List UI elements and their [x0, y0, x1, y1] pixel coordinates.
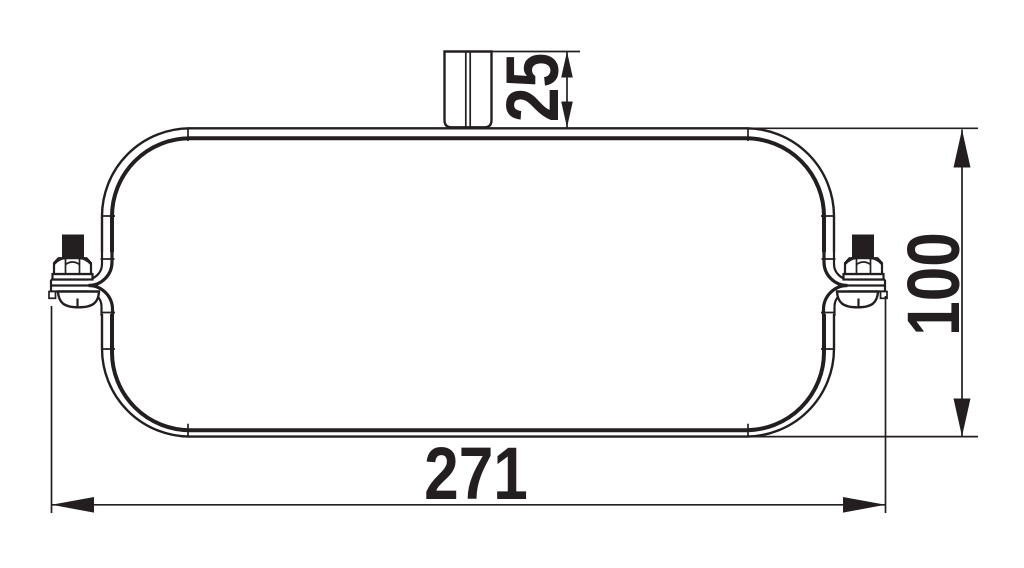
- clamp-outer-contour: [102, 128, 834, 436]
- top-connector-stud: [445, 52, 492, 128]
- width-dimension-label: 271: [424, 433, 528, 515]
- dimension-height: 100: [746, 128, 978, 436]
- threaded-stud: [62, 235, 84, 259]
- dimension-stud: 25: [492, 52, 581, 128]
- stud-outline: [445, 52, 492, 128]
- arrow-down-icon: [954, 399, 971, 437]
- technical-drawing-page: 271 100 25: [0, 0, 1024, 568]
- clamp-technical-drawing: 271 100 25: [0, 0, 1024, 568]
- arrow-right-icon: [843, 497, 886, 513]
- arrow-left-icon: [52, 497, 95, 513]
- clamp-inner-contour: [112, 138, 824, 430]
- threaded-stud: [852, 235, 874, 259]
- clamp-body: [101, 127, 835, 437]
- segment-ticks: [101, 127, 835, 437]
- stud-dimension-label: 25: [492, 53, 574, 122]
- arrow-up-icon: [954, 130, 971, 168]
- flange-tab: [49, 292, 56, 299]
- height-dimension-label: 100: [893, 232, 975, 336]
- flange-plates: [51, 280, 89, 292]
- flange-plates: [848, 280, 886, 292]
- dimension-width: 271: [52, 296, 886, 515]
